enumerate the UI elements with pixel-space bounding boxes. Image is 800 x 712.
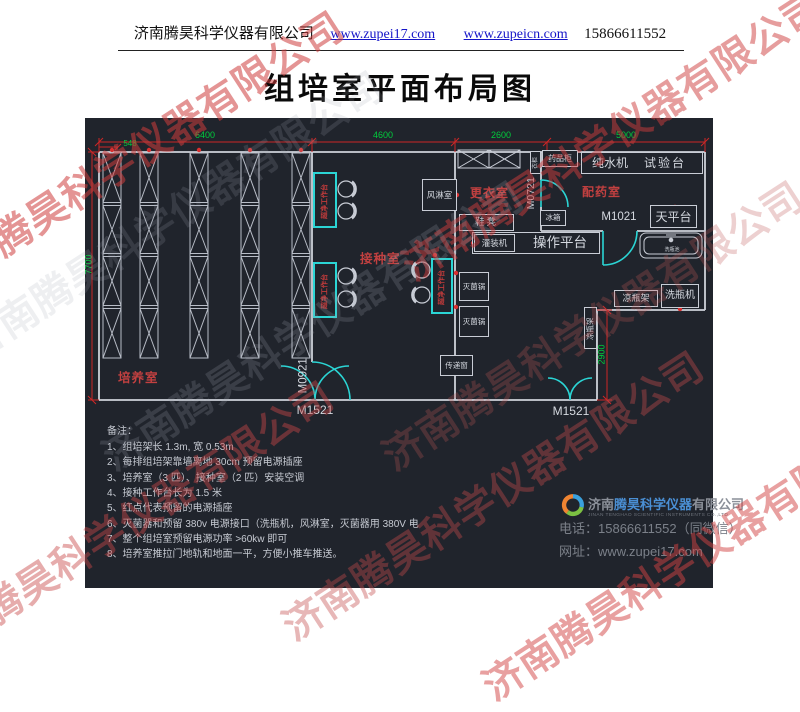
fridge-box: 冰箱 (540, 210, 566, 226)
dim-548: 548 (118, 140, 142, 148)
dimension-lines (88, 138, 709, 404)
balance-table-box: 天平台 (650, 205, 697, 228)
page: { "header": { "company": "济南腾昊科学仪器有限公司",… (0, 0, 800, 600)
cooling-rack-v-label: 凉瓶架 (586, 311, 594, 347)
air-shower-box: 风淋室 (422, 179, 457, 211)
door-m1521-right-arc (548, 378, 592, 400)
note-line-2: 2、每排组培架靠墙离地 30cm 预留电源插座 (107, 458, 303, 468)
door-m0721-arc (541, 180, 568, 207)
note-line-4: 4、接种工作台长为 1.5 米 (107, 489, 222, 499)
footer-company-name: 济南腾昊科学仪器有限公司 (588, 498, 744, 511)
footer-phone: 电话：15866611552（同微信） (559, 522, 742, 535)
clean-bench-3: 超净工作台 (431, 258, 453, 314)
stools (338, 181, 430, 307)
culture-rack-rows (103, 153, 310, 358)
header-rule (118, 50, 684, 51)
operation-platform-label: 操作平台 (520, 236, 600, 250)
header-phone: 15866611552 (584, 26, 666, 42)
filling-machine-box: 灌装机 (474, 234, 515, 252)
note-line-6: 6、灭菌器和预留 380v 电源接口（洗瓶机，风淋室，灭菌器用 380V 电 (107, 520, 419, 530)
header-bar: 济南腾昊科学仪器有限公司 www.zupei17.com www.zupeicn… (0, 22, 800, 43)
note-line-8: 8、培养室推拉门地轨和地面一平，方便小推车推送。 (107, 550, 343, 560)
door-m1021-arc (603, 231, 637, 265)
dim-2900: 2900 (598, 337, 607, 373)
footer-website: 网址：www.zupei17.com (559, 545, 703, 558)
door-m0921-arc (312, 362, 350, 400)
clean-bench-1: 超净工作台 (313, 172, 337, 228)
wardrobe-label: 衣柜 (533, 153, 539, 173)
footer-company-en: JINAN TENGHAO SCIENTIFIC INSTRUMENTS CO.… (588, 513, 728, 518)
dim-4600: 4600 (363, 131, 403, 140)
medicine-cabinet-box: 药品柜 (542, 150, 578, 167)
room-label-dispensing: 配药室 (582, 186, 621, 198)
footer-company-prefix: 济南 (588, 497, 614, 512)
door-label-m1521-right: M1521 (547, 405, 595, 417)
clean-bench-2: 超净工作台 (313, 262, 337, 318)
dim-6400: 6400 (185, 131, 225, 140)
note-line-7: 7、整个组培室预留电源功率 >60kw 即可 (107, 535, 287, 545)
footer-company-suffix: 有限公司 (692, 497, 744, 512)
room-label-culture: 培养室 (118, 372, 159, 385)
header-company-name: 济南腾昊科学仪器有限公司 (134, 26, 314, 42)
door-label-m0721: M0721 (526, 171, 537, 215)
notes-heading: 备注： (107, 427, 137, 437)
dim-5000: 5000 (606, 131, 646, 140)
pure-water-label: 纯水机 (592, 157, 628, 169)
bottle-washer-box: 洗瓶机 (661, 284, 699, 308)
room-label-changing: 更衣室 (470, 187, 509, 199)
sterilizer-box-2: 灭菌锅 (459, 306, 489, 337)
clean-bench-3-label: 超净工作台 (439, 263, 446, 313)
room-label-inoculation: 接种室 (360, 253, 401, 266)
door-m1521-left-arc (281, 366, 349, 400)
cad-panel: 548 6400 4600 2600 5000 7700 2900 培养室 接种… (85, 118, 713, 588)
company-logo-icon (561, 493, 585, 517)
page-title: 组培室平面布局图 (0, 64, 800, 108)
header-link-zupeicn[interactable]: www.zupeicn.com (464, 27, 568, 42)
pass-window-box: 传递窗 (440, 355, 473, 376)
door-label-m0921: M0921 (298, 348, 310, 404)
cooling-rack-box-v: 凉瓶架 (584, 307, 597, 349)
header-link-zupei17[interactable]: www.zupei17.com (330, 27, 435, 42)
footer-company-brand: 腾昊科学仪器 (614, 497, 692, 512)
dim-7700: 7700 (85, 247, 94, 283)
cooling-rack-box-h: 凉瓶架 (614, 290, 658, 307)
door-label-m1521-left: M1521 (283, 404, 347, 416)
shoe-bench-box: 鞋凳 (459, 214, 514, 231)
door-label-m1021: M1021 (601, 212, 637, 224)
dim-2600: 2600 (481, 131, 521, 140)
clean-bench-2-label: 超净工作台 (322, 267, 329, 317)
note-line-5: 5、红点代表预留的电源插座 (107, 504, 233, 514)
clean-bench-1-label: 超净工作台 (322, 177, 329, 227)
purewater-testbench-box: 纯水机 试验台 (581, 152, 703, 174)
wash-sink-label: 洗瓶池 (654, 246, 690, 253)
note-line-1: 1、组培架长 1.3m, 宽 0.53m (107, 443, 234, 453)
sterilizer-box-1: 灭菌锅 (459, 272, 489, 301)
note-line-3: 3、培养室（3 匹）、接种室（2 匹）安装空调 (107, 474, 304, 484)
test-bench-label: 试验台 (644, 157, 686, 169)
